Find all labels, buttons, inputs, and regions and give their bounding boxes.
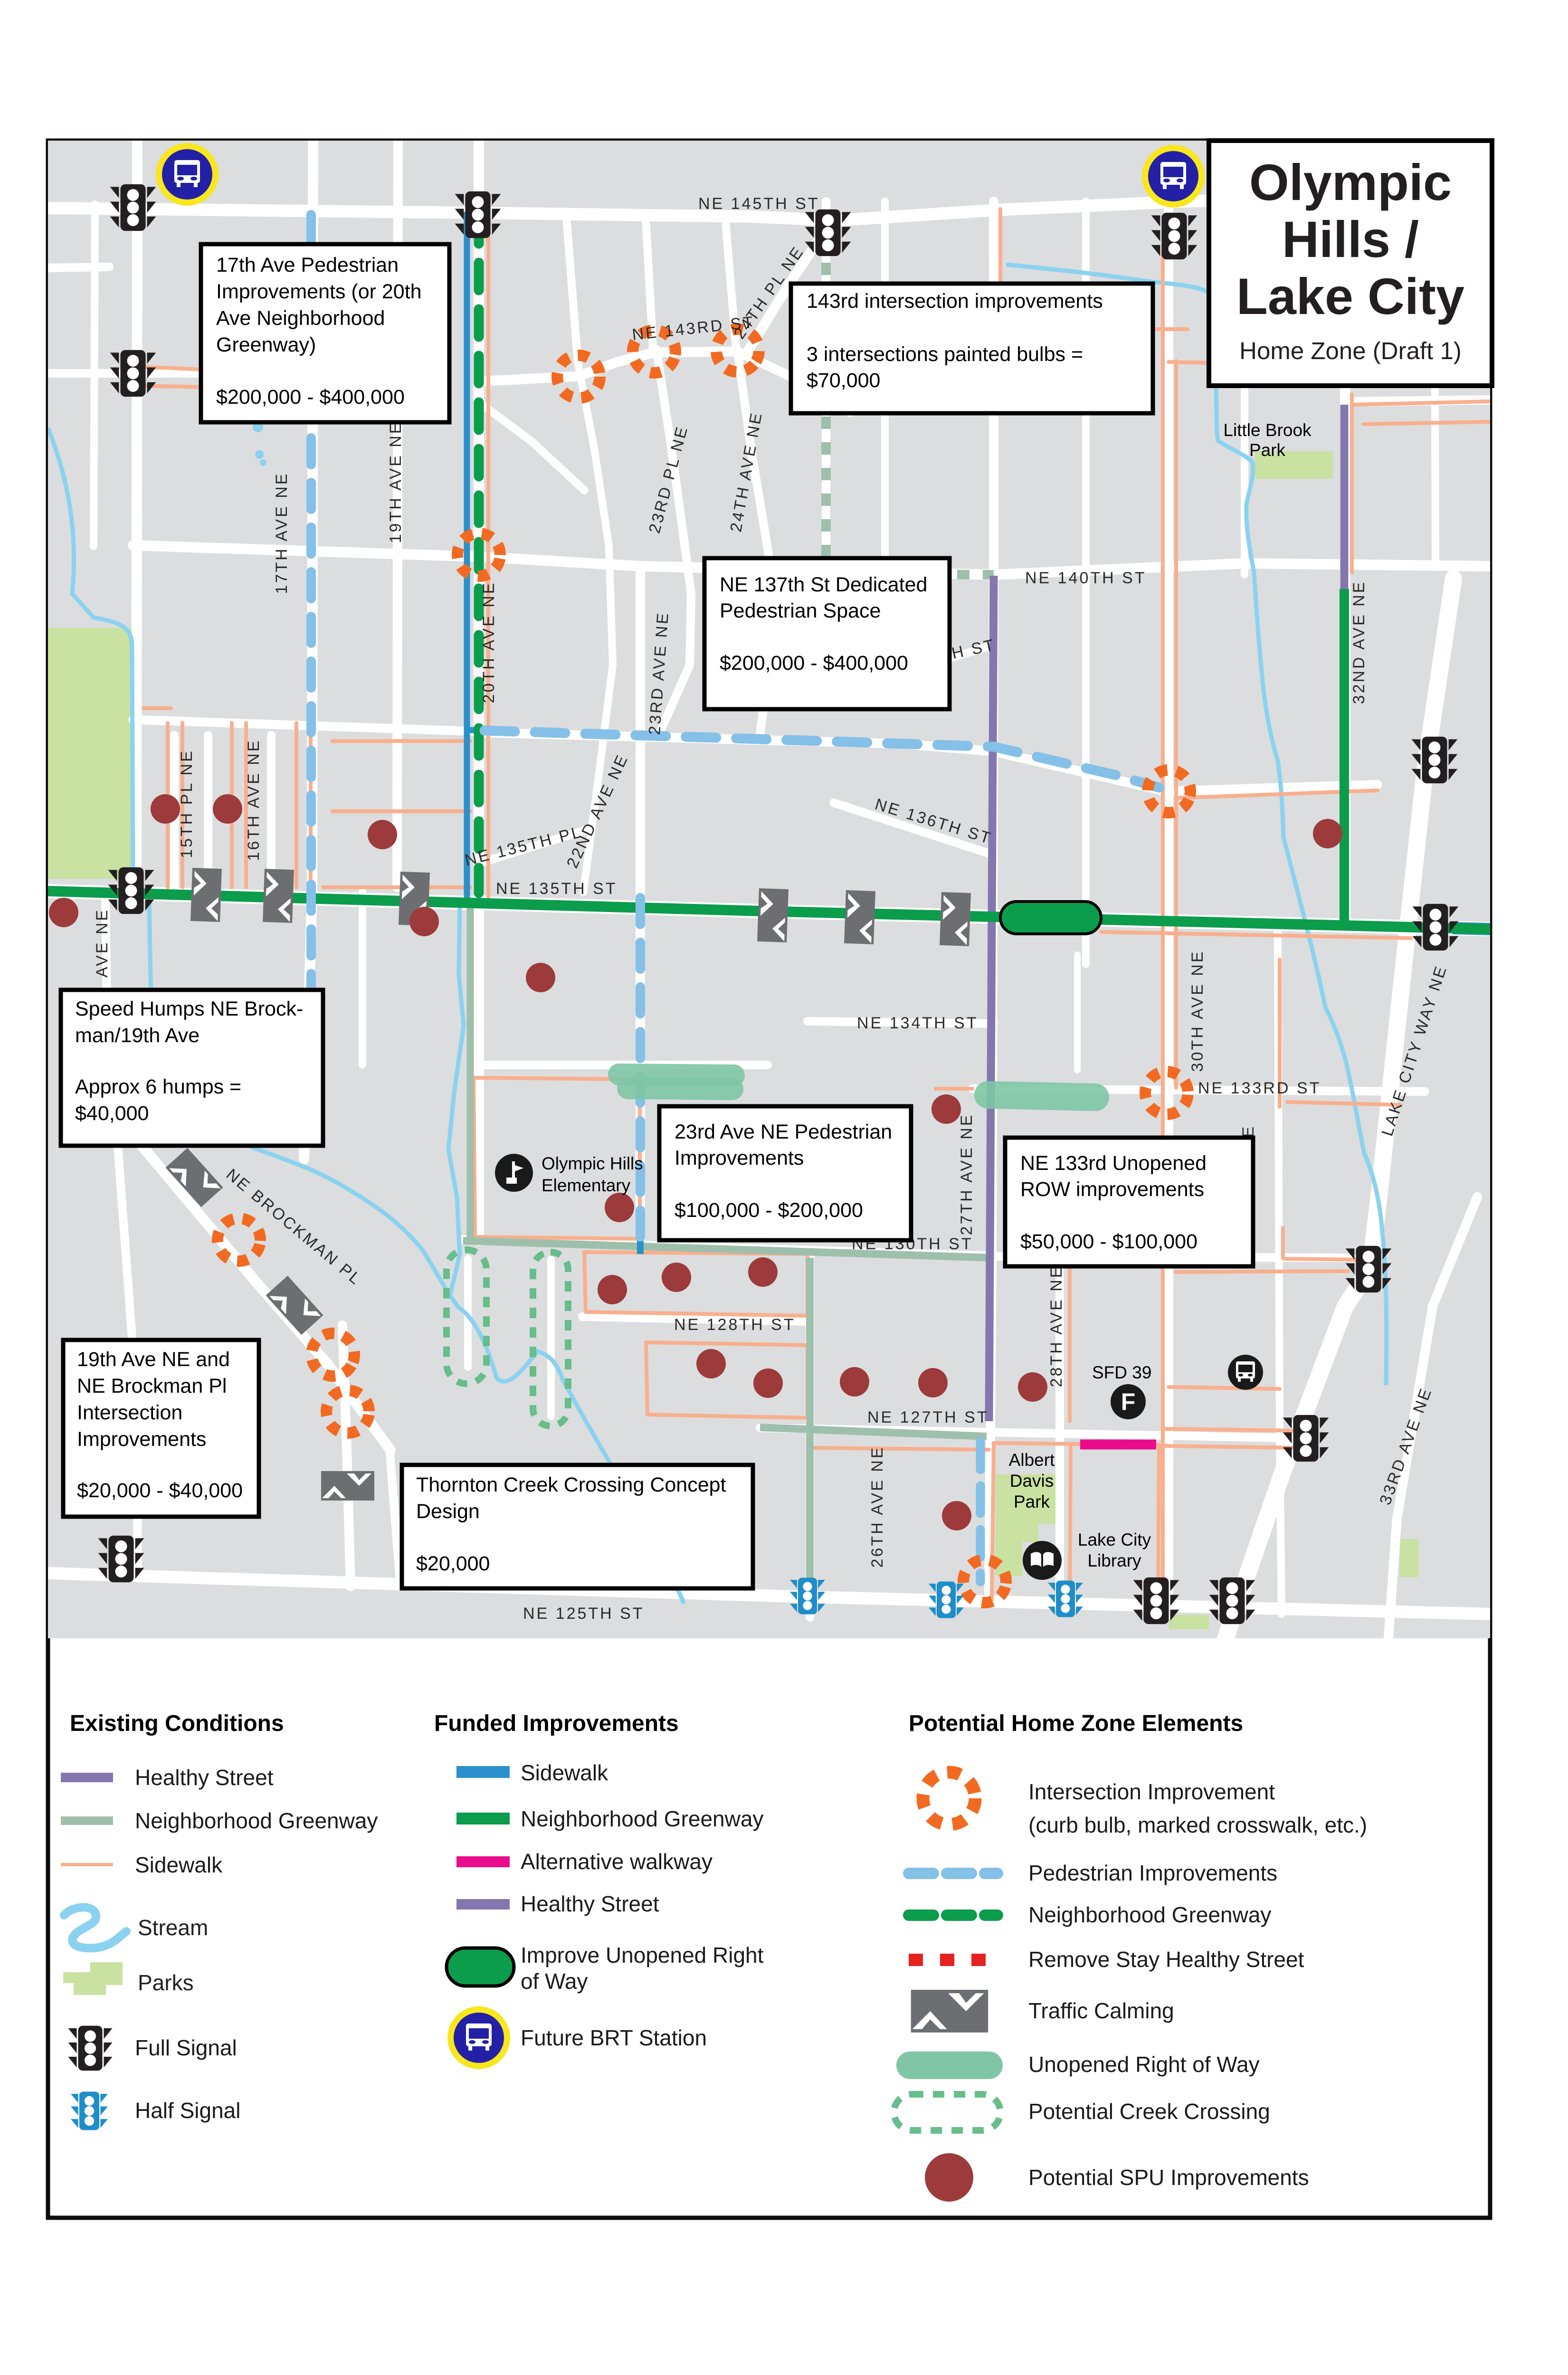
svg-text:Albert: Albert: [1009, 1450, 1055, 1470]
svg-text:Design: Design: [416, 1500, 480, 1523]
svg-text:Unopened Right of Way: Unopened Right of Way: [1028, 2052, 1260, 2077]
svg-text:15TH PL NE: 15TH PL NE: [178, 749, 196, 858]
svg-text:143rd intersection improvement: 143rd intersection improvements: [807, 290, 1103, 313]
svg-text:Neighborhood Greenway: Neighborhood Greenway: [135, 1808, 378, 1833]
svg-text:Library: Library: [1087, 1551, 1141, 1570]
svg-text:3 intersections painted bulbs: 3 intersections painted bulbs =: [807, 343, 1083, 366]
svg-text:Lake City: Lake City: [1236, 267, 1464, 325]
svg-text:Traffic Calming: Traffic Calming: [1028, 1998, 1174, 2023]
svg-text:Intersection Improvement: Intersection Improvement: [1028, 1779, 1275, 1804]
svg-text:30TH AVE NE: 30TH AVE NE: [1188, 950, 1207, 1072]
svg-text:Pedestrian Space: Pedestrian Space: [720, 599, 881, 622]
svg-text:32ND AVE NE: 32ND AVE NE: [1350, 580, 1368, 704]
svg-text:Full Signal: Full Signal: [135, 2035, 237, 2060]
svg-text:26TH AVE NE: 26TH AVE NE: [868, 1446, 886, 1568]
svg-text:Stream: Stream: [138, 1915, 208, 1940]
svg-text:$50,000 - $100,000: $50,000 - $100,000: [1020, 1230, 1197, 1253]
svg-text:16TH AVE NE: 16TH AVE NE: [245, 739, 263, 861]
svg-text:Potential Creek Crossing: Potential Creek Crossing: [1028, 2099, 1270, 2124]
svg-text:$20,000: $20,000: [416, 1552, 490, 1575]
svg-text:NE 128TH ST: NE 128TH ST: [674, 1316, 796, 1334]
svg-text:19TH AVE NE: 19TH AVE NE: [387, 421, 405, 543]
svg-text:NE 140TH ST: NE 140TH ST: [1025, 569, 1147, 587]
svg-text:Healthy Street: Healthy Street: [521, 1891, 659, 1916]
svg-text:Pedestrian Improvements: Pedestrian Improvements: [1028, 1861, 1277, 1885]
svg-text:Ave Neighborhood: Ave Neighborhood: [216, 307, 385, 330]
svg-text:Olympic Hills: Olympic Hills: [542, 1154, 643, 1173]
svg-text:Intersection: Intersection: [77, 1401, 182, 1424]
svg-text:Improvements: Improvements: [77, 1428, 206, 1451]
svg-text:27TH AVE NE: 27TH AVE NE: [958, 1113, 976, 1235]
svg-text:Park: Park: [1249, 440, 1286, 460]
svg-text:Approx 6 humps =: Approx 6 humps =: [75, 1075, 241, 1098]
svg-text:F: F: [1121, 1388, 1136, 1415]
svg-text:SFD 39: SFD 39: [1092, 1363, 1151, 1382]
svg-text:Parks: Parks: [138, 1970, 194, 1995]
svg-text:Potential Home Zone Elements: Potential Home Zone Elements: [909, 1711, 1243, 1736]
svg-text:NE 135TH ST: NE 135TH ST: [496, 880, 618, 898]
svg-text:Potential SPU Improvements: Potential SPU Improvements: [1028, 2165, 1309, 2190]
svg-text:Speed Humps NE Brock-: Speed Humps NE Brock-: [75, 997, 303, 1020]
svg-text:Improvements (or 20th: Improvements (or 20th: [216, 280, 422, 303]
svg-text:Future BRT Station: Future BRT Station: [521, 2025, 707, 2050]
svg-text:Sidewalk: Sidewalk: [521, 1760, 608, 1785]
svg-text:17th Ave Pedestrian: 17th Ave Pedestrian: [216, 254, 399, 276]
svg-text:Lake City: Lake City: [1078, 1530, 1151, 1549]
svg-text:Elementary: Elementary: [542, 1176, 631, 1195]
svg-text:$100,000 - $200,000: $100,000 - $200,000: [675, 1199, 863, 1222]
svg-text:$20,000 - $40,000: $20,000 - $40,000: [77, 1479, 243, 1502]
svg-text:19th Ave NE and: 19th Ave NE and: [77, 1348, 230, 1371]
svg-text:Hills /: Hills /: [1282, 210, 1419, 268]
svg-text:Park: Park: [1014, 1492, 1050, 1511]
svg-text:NE 125TH ST: NE 125TH ST: [523, 1605, 645, 1623]
svg-text:Sidewalk: Sidewalk: [135, 1852, 223, 1877]
svg-text:Existing Conditions: Existing Conditions: [70, 1711, 284, 1736]
svg-text:Home Zone (Draft 1): Home Zone (Draft 1): [1239, 337, 1462, 364]
svg-text:NE 145TH ST: NE 145TH ST: [698, 195, 820, 213]
svg-text:Improvements: Improvements: [675, 1147, 804, 1169]
svg-text:(curb bulb, marked crosswalk,: (curb bulb, marked crosswalk, etc.): [1028, 1813, 1367, 1837]
svg-text:$200,000 - $400,000: $200,000 - $400,000: [720, 652, 908, 674]
svg-text:NE 133rd Unopened: NE 133rd Unopened: [1020, 1152, 1207, 1175]
svg-text:NE 134TH ST: NE 134TH ST: [857, 1014, 979, 1032]
svg-text:NE Brockman Pl: NE Brockman Pl: [77, 1375, 227, 1397]
svg-text:of Way: of Way: [521, 1969, 588, 1994]
svg-text:Neighborhood Greenway: Neighborhood Greenway: [521, 1806, 763, 1831]
svg-text:20TH AVE NE: 20TH AVE NE: [480, 581, 498, 703]
svg-text:ROW improvements: ROW improvements: [1020, 1178, 1204, 1201]
svg-text:Thornton Creek Crossing Concep: Thornton Creek Crossing Concept: [416, 1473, 726, 1496]
svg-text:Little Brook: Little Brook: [1223, 420, 1311, 440]
svg-text:NE 137th St Dedicated: NE 137th St Dedicated: [720, 573, 927, 596]
svg-text:Greenway): Greenway): [216, 333, 316, 356]
svg-text:$200,000 - $400,000: $200,000 - $400,000: [216, 386, 405, 408]
svg-text:Half Signal: Half Signal: [135, 2098, 240, 2123]
svg-text:Olympic: Olympic: [1249, 153, 1452, 211]
svg-text:Davis: Davis: [1010, 1471, 1054, 1491]
svg-text:Funded Improvements: Funded Improvements: [434, 1711, 679, 1736]
svg-text:AVE NE: AVE NE: [93, 908, 111, 978]
svg-text:Remove Stay Healthy Street: Remove Stay Healthy Street: [1028, 1947, 1304, 1972]
svg-text:23rd Ave NE Pedestrian: 23rd Ave NE Pedestrian: [675, 1121, 892, 1143]
svg-text:28TH AVE NE: 28TH AVE NE: [1047, 1265, 1065, 1387]
svg-text:$70,000: $70,000: [807, 369, 880, 392]
svg-text:Improve Unopened Right: Improve Unopened Right: [521, 1943, 764, 1967]
svg-text:$40,000: $40,000: [75, 1102, 149, 1125]
svg-text:NE 127TH ST: NE 127TH ST: [867, 1408, 989, 1426]
svg-text:Neighborhood Greenway: Neighborhood Greenway: [1028, 1902, 1271, 1927]
svg-text:Alternative walkway: Alternative walkway: [521, 1849, 713, 1874]
svg-text:Healthy Street: Healthy Street: [135, 1765, 274, 1790]
svg-text:17TH AVE NE: 17TH AVE NE: [273, 472, 291, 594]
svg-text:NE 133RD ST: NE 133RD ST: [1198, 1079, 1321, 1097]
svg-text:man/19th Ave: man/19th Ave: [75, 1024, 200, 1047]
